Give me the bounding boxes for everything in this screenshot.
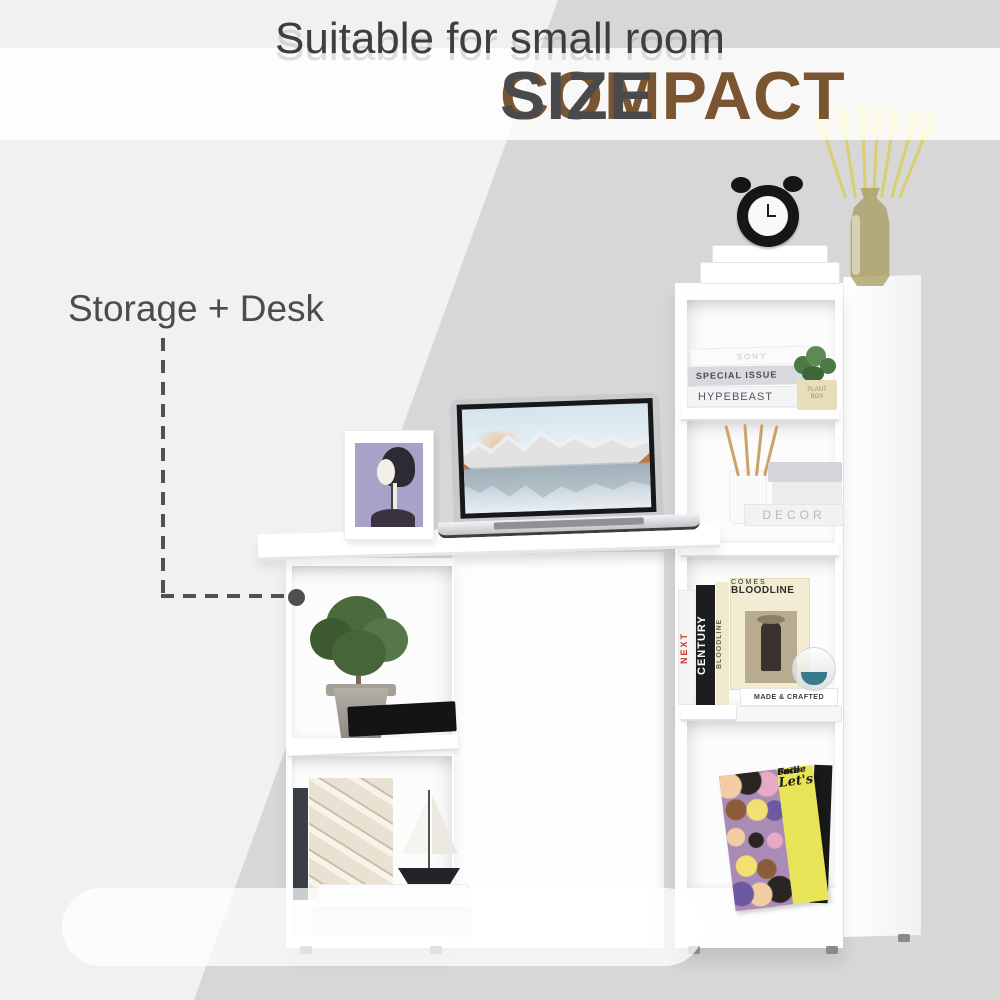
black-notebook bbox=[347, 701, 456, 737]
portrait-artwork bbox=[355, 443, 423, 527]
dashed-connector-horizontal bbox=[161, 594, 286, 598]
book-spine-bloodline: BLOODLINE bbox=[716, 582, 729, 705]
cabinet-foot bbox=[898, 934, 910, 942]
plant-box-pot: PLANT BOX bbox=[797, 380, 837, 410]
connector-dot bbox=[288, 589, 305, 606]
book-spine-century: CENTURY bbox=[696, 585, 715, 705]
wallpaper-lake bbox=[464, 463, 651, 513]
laptop-wallpaper-mountains bbox=[462, 403, 652, 513]
page-title: COMPACT SIZE bbox=[0, 56, 1000, 136]
caption-text: Suitable for small room bbox=[0, 14, 1000, 64]
cabinet-foot bbox=[826, 946, 838, 954]
bookcase-side-panel bbox=[843, 275, 921, 937]
annotation-label: Storage + Desk bbox=[68, 288, 324, 330]
caption-pill bbox=[62, 888, 704, 966]
stacked-book bbox=[700, 262, 840, 284]
cover-photo bbox=[745, 611, 797, 683]
title-size: SIZE bbox=[500, 56, 655, 136]
stacked-book bbox=[712, 245, 828, 263]
boat-mast bbox=[428, 790, 430, 870]
pencils bbox=[733, 424, 773, 476]
book-spine-next: NEXT bbox=[678, 590, 695, 705]
book-made-and-crafted: MADE & CRAFTED bbox=[740, 688, 838, 706]
laptop-bezel bbox=[457, 398, 657, 519]
laptop-keys bbox=[494, 517, 644, 529]
wallpaper-reflection bbox=[464, 461, 651, 507]
product-marketing-image: COMPACT SIZE Storage + Desk SONY SPECIAL… bbox=[0, 0, 1000, 1000]
hourglass bbox=[792, 647, 836, 691]
laptop bbox=[433, 391, 700, 550]
boat-sail bbox=[432, 794, 458, 854]
book-decor: DECOR bbox=[744, 504, 844, 526]
illustrated-poster-book: Let's Put a Smile On That Face bbox=[719, 765, 829, 911]
book-striped bbox=[309, 778, 393, 900]
artwork-face bbox=[377, 459, 395, 485]
topiary-plant bbox=[308, 596, 412, 688]
book-spine-dark bbox=[293, 788, 308, 900]
cover-title: BLOODLINE bbox=[731, 585, 794, 596]
boat-hull bbox=[398, 868, 460, 884]
cover-subtitle: COMES bbox=[731, 579, 767, 586]
artwork-shoulders bbox=[371, 509, 415, 527]
boat-sail bbox=[402, 798, 428, 854]
model-sailboat bbox=[396, 790, 462, 896]
laptop-screen bbox=[451, 393, 661, 524]
stacked-book bbox=[768, 462, 842, 482]
alarm-clock bbox=[737, 185, 799, 247]
stacked-book bbox=[772, 482, 842, 504]
vase-highlight bbox=[852, 215, 860, 275]
clock-hour-hand bbox=[767, 215, 776, 217]
picture-frame bbox=[344, 430, 434, 540]
stacked-book bbox=[736, 706, 842, 722]
dashed-connector-vertical bbox=[161, 338, 165, 594]
clock-face bbox=[748, 196, 788, 236]
